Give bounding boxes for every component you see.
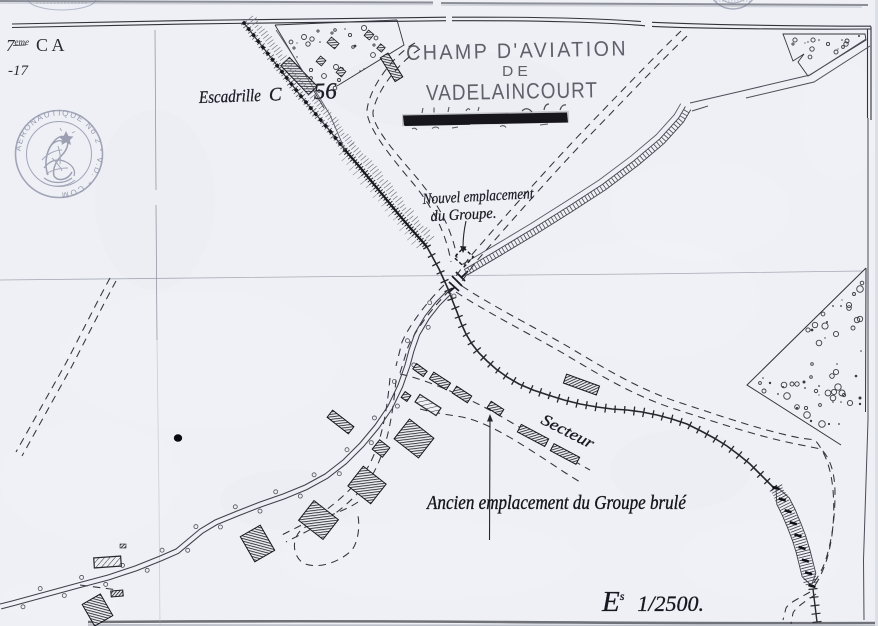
svg-text:CHAMP D'AVIATION: CHAMP D'AVIATION	[406, 37, 628, 65]
svg-text:C: C	[269, 84, 283, 105]
svg-text:Es1/2500.: Es1/2500.	[601, 586, 704, 618]
svg-text:DE: DE	[502, 63, 532, 80]
svg-text:Ancien emplacement du Groupe b: Ancien emplacement du Groupe brulé	[425, 493, 687, 514]
svg-text:VADELAINCOURT: VADELAINCOURT	[426, 77, 598, 105]
svg-text:-17: -17	[8, 63, 29, 79]
svg-text:du Groupe.: du Groupe.	[430, 205, 497, 225]
svg-text:56: 56	[313, 78, 337, 104]
svg-text:Escadrille: Escadrille	[198, 85, 262, 107]
